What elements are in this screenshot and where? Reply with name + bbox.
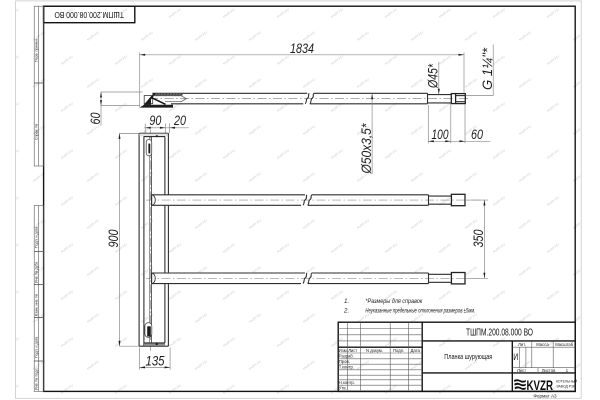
svg-text:ЗАВОД РЭП: ЗАВОД РЭП — [557, 385, 577, 389]
svg-text:Изм.: Изм. — [339, 348, 348, 353]
svg-text:100: 100 — [432, 127, 449, 142]
svg-text:Лист: Лист — [517, 368, 526, 373]
svg-text:N докум.: N докум. — [366, 348, 383, 353]
svg-text:135: 135 — [146, 353, 165, 368]
svg-text:ТШПМ.200.08.000 ВО: ТШПМ.200.08.000 ВО — [466, 327, 533, 338]
svg-text:Лит.: Лит. — [518, 342, 526, 347]
svg-text:Т.контр.: Т.контр. — [339, 365, 354, 370]
svg-text:Ø50х3,5*: Ø50х3,5* — [359, 123, 374, 175]
svg-text:Н.контр.: Н.контр. — [339, 380, 355, 385]
svg-text:Масса: Масса — [536, 342, 549, 347]
svg-text:900: 900 — [106, 229, 121, 247]
svg-text:Листов: Листов — [542, 368, 556, 373]
svg-text:Подп. и дата: Подп. и дата — [34, 227, 38, 248]
svg-text:Подп. и дата: Подп. и дата — [34, 337, 38, 358]
svg-text:Масштаб: Масштаб — [555, 342, 574, 347]
svg-text:Неуказанные предельные отклоне: Неуказанные предельные отклонения размер… — [365, 307, 475, 314]
svg-text:90: 90 — [149, 113, 161, 128]
svg-text:Подп.: Подп. — [393, 348, 404, 353]
svg-text:20: 20 — [173, 113, 186, 128]
svg-text:Инв. № дубл.: Инв. № дубл. — [34, 261, 38, 283]
svg-text:И: И — [513, 352, 518, 362]
svg-text:ТШПМ.200.08.000 ВО: ТШПМ.200.08.000 ВО — [54, 10, 124, 20]
svg-text:60: 60 — [88, 112, 103, 124]
svg-text:Ø45*: Ø45* — [426, 63, 441, 88]
svg-text:G 1¼"*: G 1¼"* — [480, 47, 495, 90]
svg-text:1834: 1834 — [290, 41, 314, 56]
svg-text:Пров.: Пров. — [339, 359, 350, 364]
svg-text:Инв. № подл.: Инв. № подл. — [34, 368, 38, 390]
svg-text:КОТЕЛЬНЫЙ: КОТЕЛЬНЫЙ — [556, 380, 578, 384]
svg-text:2.: 2. — [343, 307, 349, 314]
svg-text:Справ. №: Справ. № — [34, 124, 38, 140]
svg-text:Утв.: Утв. — [339, 385, 347, 390]
svg-text:KVZR: KVZR — [527, 377, 554, 393]
svg-text:Планка шурующая: Планка шурующая — [444, 354, 492, 361]
svg-text:Перв. примен.: Перв. примен. — [34, 38, 38, 62]
svg-text:60: 60 — [471, 127, 483, 142]
svg-text:Дата: Дата — [411, 348, 421, 353]
svg-text:Формат А3: Формат А3 — [533, 394, 557, 399]
svg-text:350: 350 — [471, 229, 486, 247]
svg-text:1.: 1. — [344, 298, 349, 305]
svg-text:Взам. инв. №: Взам. инв. № — [34, 294, 38, 316]
svg-text:Лист: Лист — [348, 348, 357, 353]
svg-text:Разраб.: Разраб. — [339, 354, 354, 359]
svg-text:*Размеры для справок: *Размеры для справок — [365, 298, 423, 305]
